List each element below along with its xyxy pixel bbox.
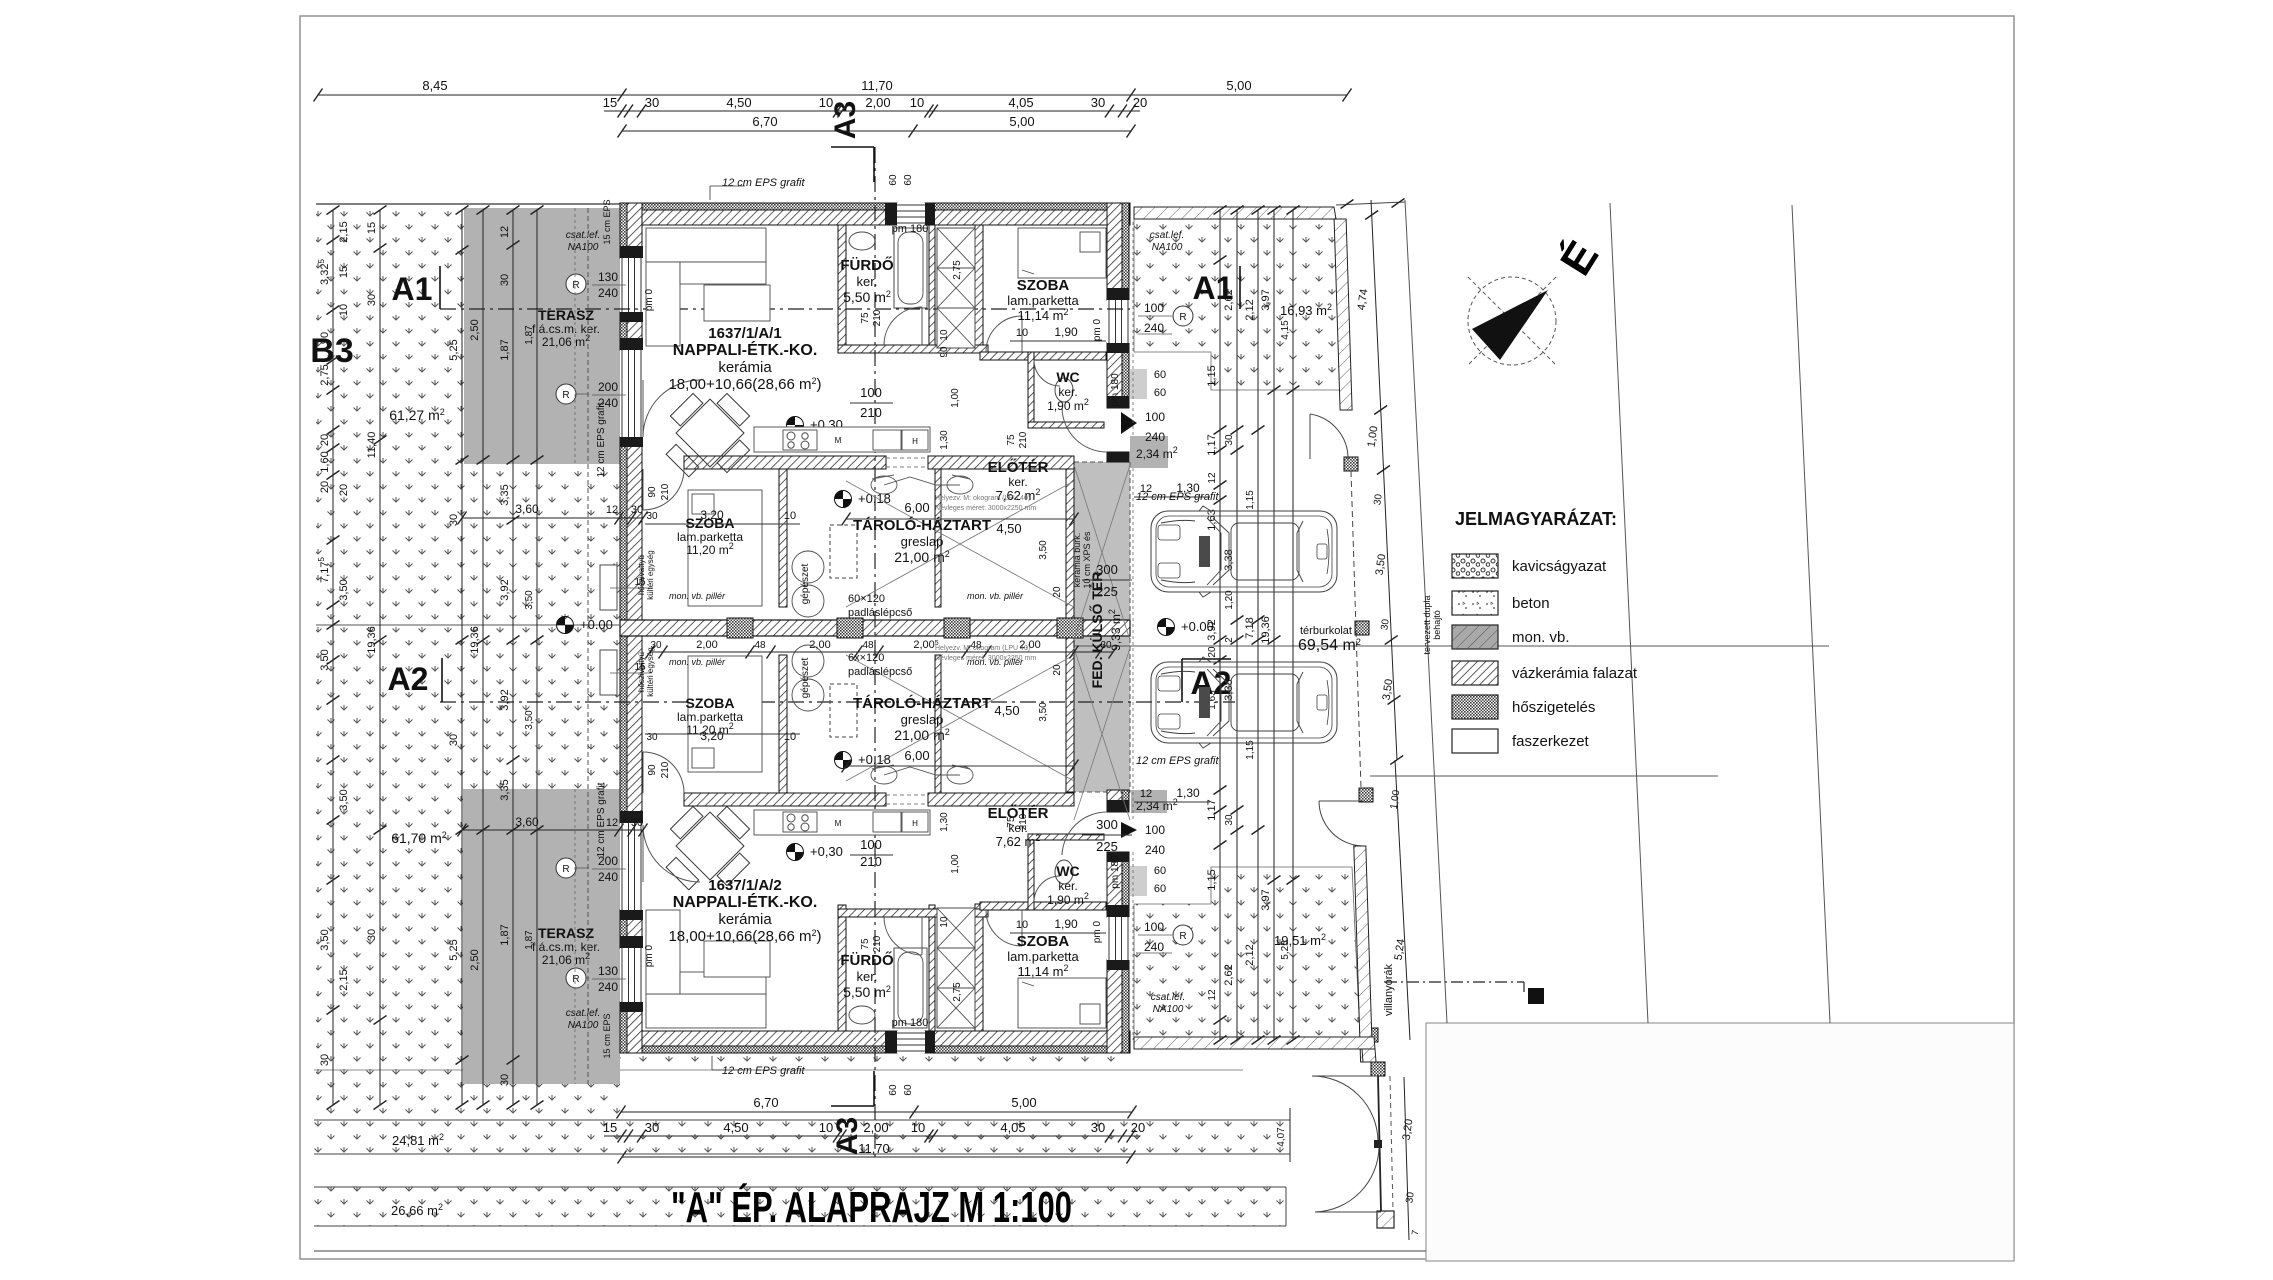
- svg-text:10: 10: [1016, 327, 1028, 339]
- svg-text:mon. vb.: mon. vb.: [1512, 629, 1570, 646]
- svg-text:pm 180: pm 180: [1110, 373, 1121, 407]
- svg-text:1,90: 1,90: [1054, 325, 1078, 339]
- svg-text:7,18: 7,18: [1244, 617, 1256, 638]
- svg-text:ker.: ker.: [1058, 385, 1077, 399]
- svg-text:FÜRDŐ: FÜRDŐ: [840, 951, 894, 969]
- svg-text:3,92: 3,92: [499, 579, 511, 600]
- svg-text:240: 240: [598, 980, 618, 994]
- svg-text:ker.: ker.: [857, 969, 878, 984]
- svg-text:3,60: 3,60: [515, 502, 539, 516]
- svg-text:20: 20: [319, 481, 331, 493]
- svg-text:Névleges méret: 3000x2250 mm: Névleges méret: 3000x2250 mm: [935, 505, 1036, 512]
- svg-text:4,05: 4,05: [1008, 95, 1033, 110]
- svg-text:30: 30: [448, 734, 460, 746]
- svg-text:200: 200: [598, 380, 618, 394]
- svg-text:225: 225: [1096, 584, 1118, 599]
- svg-text:20: 20: [338, 484, 350, 496]
- svg-text:20: 20: [1131, 1120, 1145, 1135]
- svg-text:pm 0: pm 0: [644, 288, 655, 311]
- svg-text:60: 60: [1154, 865, 1166, 877]
- svg-text:2,75: 2,75: [952, 982, 963, 1002]
- svg-text:240: 240: [1145, 843, 1165, 857]
- svg-text:60×120: 60×120: [848, 593, 885, 605]
- svg-text:padláslépcső: padláslépcső: [848, 607, 912, 619]
- svg-text:pm 180: pm 180: [892, 1017, 929, 1029]
- svg-text:10: 10: [819, 1120, 833, 1135]
- svg-text:kültéri egység: kültéri egység: [646, 647, 655, 696]
- svg-text:WC: WC: [1056, 369, 1079, 385]
- svg-text:210: 210: [1018, 431, 1029, 448]
- svg-text:19,36: 19,36: [366, 626, 378, 654]
- svg-text:30: 30: [366, 294, 378, 306]
- svg-text:11,70: 11,70: [861, 78, 893, 93]
- svg-text:NAPPALI-ÉTK.-KO.: NAPPALI-ÉTK.-KO.: [673, 892, 818, 911]
- svg-text:1,17: 1,17: [1206, 799, 1218, 820]
- svg-text:30: 30: [499, 1074, 511, 1086]
- svg-text:24,81 m2: 24,81 m2: [392, 1132, 444, 1148]
- svg-text:2,00: 2,00: [809, 639, 830, 651]
- svg-text:beton: beton: [1512, 595, 1550, 612]
- svg-text:60: 60: [888, 1084, 899, 1096]
- svg-text:10: 10: [784, 731, 796, 743]
- svg-text:210: 210: [660, 483, 671, 500]
- svg-text:pm 180: pm 180: [892, 223, 929, 235]
- svg-text:pm 0: pm 0: [644, 944, 655, 967]
- svg-text:1,20: 1,20: [1224, 590, 1235, 610]
- svg-text:20: 20: [319, 434, 331, 446]
- svg-text:ker.: ker.: [857, 274, 878, 289]
- svg-text:2,15: 2,15: [338, 221, 350, 242]
- svg-text:R: R: [572, 974, 579, 985]
- svg-text:+0,18: +0,18: [858, 491, 891, 506]
- svg-text:21,00 m2: 21,00 m2: [894, 549, 950, 565]
- svg-text:210: 210: [860, 854, 882, 869]
- svg-text:+0,30: +0,30: [810, 844, 843, 859]
- svg-text:15: 15: [338, 266, 350, 278]
- svg-text:csat.lef.: csat.lef.: [1151, 992, 1185, 1003]
- svg-text:3,50: 3,50: [524, 710, 535, 730]
- svg-text:H: H: [912, 437, 918, 446]
- svg-text:5,50 m2: 5,50 m2: [843, 984, 891, 1000]
- svg-text:60: 60: [888, 174, 899, 186]
- svg-text:240: 240: [1144, 321, 1164, 335]
- svg-text:60: 60: [903, 174, 914, 186]
- svg-text:1,15: 1,15: [1206, 365, 1218, 386]
- svg-text:3,50: 3,50: [319, 929, 331, 950]
- svg-text:2,75: 2,75: [319, 364, 331, 385]
- svg-text:69,54 m2: 69,54 m2: [1298, 637, 1361, 654]
- svg-text:240: 240: [598, 286, 618, 300]
- svg-text:30: 30: [1091, 95, 1105, 110]
- svg-text:26,66 m2: 26,66 m2: [391, 1202, 443, 1218]
- svg-text:1,87: 1,87: [499, 339, 511, 360]
- svg-text:ker.: ker.: [1058, 879, 1077, 893]
- svg-text:210: 210: [860, 405, 882, 420]
- svg-text:1,30: 1,30: [1176, 786, 1200, 800]
- svg-text:3,50: 3,50: [319, 649, 331, 670]
- svg-text:10: 10: [939, 916, 950, 928]
- svg-text:FÜRDŐ: FÜRDŐ: [840, 256, 894, 274]
- svg-text:100: 100: [860, 385, 882, 400]
- svg-text:61,70 m2: 61,70 m2: [391, 830, 447, 846]
- svg-text:6,00: 6,00: [904, 500, 929, 515]
- svg-text:5,25: 5,25: [448, 939, 460, 960]
- svg-text:padláslépcső: padláslépcső: [848, 666, 912, 678]
- svg-text:pm 0: pm 0: [1092, 318, 1103, 341]
- svg-text:20: 20: [1052, 664, 1063, 676]
- svg-text:kerámia: kerámia: [718, 359, 772, 376]
- svg-text:4,05: 4,05: [1000, 1120, 1025, 1135]
- svg-text:10: 10: [911, 1120, 925, 1135]
- svg-text:3,50: 3,50: [1038, 702, 1049, 722]
- svg-text:15: 15: [603, 1120, 617, 1135]
- svg-text:Helyezv. M: okogram (LPU 40): Helyezv. M: okogram (LPU 40): [935, 495, 1030, 502]
- svg-text:10 cm XPS és: 10 cm XPS és: [1082, 531, 1092, 589]
- svg-text:1637/1/A/2: 1637/1/A/2: [708, 877, 781, 894]
- svg-text:csat.lef.: csat.lef.: [566, 230, 600, 241]
- svg-text:3,97: 3,97: [1260, 889, 1272, 910]
- svg-text:30: 30: [1224, 434, 1235, 446]
- svg-text:SZOBA: SZOBA: [1017, 277, 1070, 294]
- svg-text:12: 12: [1207, 472, 1218, 484]
- svg-text:100: 100: [1144, 301, 1164, 315]
- svg-text:NAPPALI-ÉTK.-KO.: NAPPALI-ÉTK.-KO.: [673, 340, 818, 359]
- svg-text:3,50: 3,50: [338, 789, 350, 810]
- svg-text:NA100: NA100: [1152, 242, 1183, 253]
- svg-text:H: H: [912, 819, 918, 828]
- svg-text:30: 30: [1379, 618, 1392, 631]
- svg-text:210: 210: [1018, 813, 1029, 830]
- svg-text:90: 90: [647, 486, 658, 498]
- svg-text:"A" ÉP. ALAPRAJZ M 1:100: "A" ÉP. ALAPRAJZ M 1:100: [671, 1182, 1072, 1232]
- svg-text:1,90 m2: 1,90 m2: [1047, 397, 1089, 413]
- svg-text:90: 90: [939, 346, 950, 358]
- svg-text:90: 90: [647, 764, 658, 776]
- svg-text:30: 30: [1091, 1120, 1105, 1135]
- svg-text:12 cm EPS grafit: 12 cm EPS grafit: [596, 782, 607, 857]
- svg-text:1637/1/A/1: 1637/1/A/1: [708, 325, 781, 342]
- svg-text:21,00 m2: 21,00 m2: [894, 727, 950, 743]
- svg-text:NA100: NA100: [568, 242, 599, 253]
- svg-text:kültéri egység: kültéri egység: [646, 550, 655, 599]
- svg-text:3,92: 3,92: [499, 689, 511, 710]
- svg-text:mon. vb. pillér: mon. vb. pillér: [967, 591, 1024, 601]
- svg-text:4,50: 4,50: [996, 521, 1021, 536]
- svg-text:5,50 m2: 5,50 m2: [843, 289, 891, 305]
- svg-text:TERASZ: TERASZ: [538, 925, 594, 941]
- svg-text:3,92: 3,92: [1206, 619, 1218, 640]
- svg-text:21,06 m2: 21,06 m2: [542, 333, 590, 349]
- svg-text:3,97: 3,97: [1260, 289, 1272, 310]
- svg-text:4,50: 4,50: [723, 1120, 748, 1135]
- svg-text:1,30: 1,30: [939, 812, 950, 832]
- svg-text:3,20: 3,20: [700, 729, 724, 743]
- svg-text:TERASZ: TERASZ: [538, 307, 594, 323]
- svg-text:12: 12: [1207, 989, 1218, 1001]
- svg-text:A1: A1: [392, 271, 433, 307]
- svg-text:1,90: 1,90: [1054, 917, 1078, 931]
- svg-text:75: 75: [860, 312, 871, 324]
- svg-text:18,00+10,66(28,66 m2): 18,00+10,66(28,66 m2): [668, 928, 821, 945]
- svg-text:3,60: 3,60: [515, 815, 539, 829]
- svg-text:12: 12: [499, 226, 511, 238]
- svg-text:12 cm EPS grafit: 12 cm EPS grafit: [722, 177, 805, 189]
- svg-text:30: 30: [645, 95, 659, 110]
- svg-text:130: 130: [598, 964, 618, 978]
- svg-text:6,00: 6,00: [904, 748, 929, 763]
- svg-text:30: 30: [319, 1054, 331, 1066]
- svg-text:1,15: 1,15: [1206, 869, 1218, 890]
- svg-text:30: 30: [1100, 640, 1112, 651]
- svg-text:3,35: 3,35: [499, 484, 511, 505]
- svg-text:19,36: 19,36: [469, 626, 481, 654]
- svg-text:20: 20: [1133, 95, 1147, 110]
- svg-text:15: 15: [603, 95, 617, 110]
- svg-text:10: 10: [784, 510, 796, 522]
- svg-text:R: R: [1179, 931, 1186, 942]
- svg-text:60: 60: [1154, 387, 1166, 399]
- svg-text:ker.: ker.: [1008, 475, 1027, 489]
- svg-text:1,30: 1,30: [939, 430, 950, 450]
- svg-text:10: 10: [910, 95, 924, 110]
- svg-text:18,00+10,66(28,66 m2): 18,00+10,66(28,66 m2): [668, 376, 821, 393]
- svg-text:1,00: 1,00: [950, 854, 961, 874]
- svg-text:pm 180: pm 180: [1110, 855, 1121, 889]
- svg-text:10: 10: [338, 304, 350, 316]
- svg-text:4,50: 4,50: [726, 95, 751, 110]
- svg-text:75: 75: [1006, 434, 1017, 446]
- svg-text:19,36: 19,36: [1260, 616, 1272, 644]
- svg-text:15: 15: [366, 222, 378, 234]
- svg-text:6x×120: 6x×120: [848, 652, 884, 664]
- svg-text:hőszivattyú: hőszivattyú: [637, 555, 646, 595]
- svg-text:kavicságyazat: kavicságyazat: [1512, 558, 1607, 575]
- svg-text:30: 30: [646, 511, 658, 522]
- svg-text:térburkolat: térburkolat: [1300, 625, 1352, 637]
- svg-text:NA100: NA100: [1153, 1004, 1184, 1015]
- svg-text:300: 300: [1096, 817, 1118, 832]
- svg-text:4,50: 4,50: [994, 703, 1019, 718]
- svg-text:19,51 m2: 19,51 m2: [1274, 932, 1326, 948]
- svg-text:1,17: 1,17: [1206, 434, 1218, 455]
- svg-text:SZOBA: SZOBA: [686, 695, 735, 711]
- svg-text:12: 12: [1140, 788, 1152, 800]
- svg-text:240: 240: [1145, 430, 1165, 444]
- svg-text:30: 30: [366, 929, 378, 941]
- svg-text:2,62: 2,62: [1223, 964, 1235, 985]
- svg-text:R: R: [572, 280, 579, 291]
- svg-text:10: 10: [819, 95, 833, 110]
- svg-text:12 cm EPS grafit: 12 cm EPS grafit: [596, 402, 607, 477]
- svg-text:6,70: 6,70: [752, 114, 777, 129]
- svg-text:hőszigetelés: hőszigetelés: [1512, 699, 1595, 716]
- svg-text:225: 225: [1096, 839, 1118, 854]
- svg-text:WC: WC: [1056, 863, 1079, 879]
- svg-text:30: 30: [631, 817, 643, 829]
- svg-text:R: R: [562, 864, 569, 875]
- svg-text:61,27 m2: 61,27 m2: [389, 407, 445, 423]
- svg-text:lam.parketta: lam.parketta: [1007, 949, 1079, 964]
- svg-text:12: 12: [606, 504, 618, 516]
- svg-text:60: 60: [1154, 883, 1166, 895]
- svg-text:villanyórák: villanyórák: [1383, 964, 1395, 1016]
- svg-text:pm 0: pm 0: [1092, 920, 1103, 943]
- svg-text:mon. vb. pillér: mon. vb. pillér: [967, 657, 1024, 667]
- svg-text:NA100: NA100: [568, 1020, 599, 1031]
- svg-text:240: 240: [1144, 940, 1164, 954]
- svg-text:kerámia burk.: kerámia burk.: [1072, 533, 1082, 588]
- svg-text:30: 30: [1224, 814, 1235, 826]
- svg-text:csat.lef.: csat.lef.: [1150, 230, 1184, 241]
- svg-text:11,14 m2: 11,14 m2: [1017, 963, 1068, 979]
- svg-text:2,12: 2,12: [1244, 944, 1256, 965]
- svg-text:hőszivattyú: hőszivattyú: [637, 652, 646, 692]
- svg-text:6,70: 6,70: [753, 1095, 778, 1110]
- svg-text:mon. vb. pillér: mon. vb. pillér: [669, 657, 726, 667]
- svg-text:11,20 m2: 11,20 m2: [686, 541, 733, 557]
- svg-text:11,14 m2: 11,14 m2: [1017, 307, 1068, 323]
- svg-text:210: 210: [660, 761, 671, 778]
- svg-text:B3: B3: [310, 332, 353, 370]
- svg-text:1,00: 1,00: [950, 388, 961, 408]
- svg-text:48: 48: [862, 640, 874, 651]
- svg-text:5,25: 5,25: [448, 339, 460, 360]
- svg-text:2,50: 2,50: [469, 319, 481, 340]
- svg-text:240: 240: [598, 870, 618, 884]
- svg-text:15 cm EPS: 15 cm EPS: [602, 199, 612, 244]
- svg-text:2,00: 2,00: [865, 95, 890, 110]
- svg-text:2,75: 2,75: [952, 260, 963, 280]
- svg-text:1,90 m2: 1,90 m2: [1047, 891, 1089, 907]
- svg-text:210: 210: [872, 309, 883, 326]
- svg-text:11,40: 11,40: [366, 432, 378, 459]
- svg-text:60: 60: [903, 1084, 914, 1096]
- svg-text:gépészet: gépészet: [800, 657, 811, 698]
- svg-text:10: 10: [1016, 919, 1028, 931]
- svg-text:12 cm EPS grafit: 12 cm EPS grafit: [722, 1065, 805, 1077]
- svg-text:5,00: 5,00: [1009, 114, 1034, 129]
- svg-text:R: R: [562, 390, 569, 401]
- svg-text:20: 20: [1207, 646, 1218, 658]
- svg-text:kerámia: kerámia: [718, 911, 772, 928]
- svg-text:30: 30: [1372, 493, 1385, 506]
- svg-text:75: 75: [1006, 816, 1017, 828]
- svg-text:4,07: 4,07: [1276, 1127, 1287, 1147]
- svg-text:130: 130: [598, 270, 618, 284]
- svg-text:30: 30: [631, 504, 643, 516]
- svg-text:1,60: 1,60: [319, 451, 331, 472]
- svg-text:ELŐTÉR: ELŐTÉR: [988, 458, 1049, 476]
- svg-text:2,12: 2,12: [1244, 299, 1256, 320]
- svg-text:20: 20: [1052, 586, 1063, 598]
- svg-text:12 cm EPS grafit: 12 cm EPS grafit: [1136, 491, 1219, 503]
- svg-text:+0.00: +0.00: [580, 617, 613, 632]
- svg-text:greslap: greslap: [901, 534, 944, 549]
- svg-text:75: 75: [860, 938, 871, 950]
- svg-text:vázkerámia falazat: vázkerámia falazat: [1512, 665, 1638, 682]
- svg-text:M: M: [835, 819, 842, 828]
- svg-text:3,20: 3,20: [700, 508, 724, 522]
- svg-text:2,00: 2,00: [696, 639, 717, 651]
- svg-text:3,50: 3,50: [1038, 540, 1049, 560]
- svg-text:21,06 m2: 21,06 m2: [542, 951, 590, 967]
- svg-text:100: 100: [1145, 823, 1165, 837]
- svg-text:3,50: 3,50: [524, 590, 535, 610]
- svg-text:2,62: 2,62: [1223, 289, 1235, 310]
- svg-text:Helyezv. M: okogram (LPU 40): Helyezv. M: okogram (LPU 40): [935, 645, 1030, 652]
- svg-text:10: 10: [939, 329, 950, 341]
- svg-text:1,87: 1,87: [499, 924, 511, 945]
- svg-text:greslap: greslap: [901, 712, 944, 727]
- svg-text:2,00: 2,00: [863, 1120, 888, 1135]
- svg-text:2,50: 2,50: [469, 949, 481, 970]
- svg-text:100: 100: [1144, 920, 1164, 934]
- svg-text:11,70: 11,70: [858, 1141, 890, 1156]
- svg-text:16,93 m2: 16,93 m2: [1280, 302, 1332, 318]
- svg-text:12: 12: [606, 817, 618, 829]
- svg-text:100: 100: [1145, 410, 1165, 424]
- svg-text:4,15: 4,15: [1280, 320, 1291, 340]
- svg-text:csat.lef.: csat.lef.: [566, 1008, 600, 1019]
- svg-text:30: 30: [645, 1120, 659, 1135]
- svg-text:2,15: 2,15: [338, 969, 350, 990]
- svg-text:48: 48: [754, 640, 766, 651]
- svg-text:2,34 m2: 2,34 m2: [1136, 445, 1178, 461]
- svg-text:3,35: 3,35: [499, 779, 511, 800]
- svg-text:15 cm EPS: 15 cm EPS: [602, 1013, 612, 1058]
- svg-text:7,62 m2: 7,62 m2: [996, 833, 1041, 849]
- svg-text:100: 100: [860, 837, 882, 852]
- svg-text:2: 2: [1224, 637, 1235, 643]
- svg-text:A2: A2: [388, 661, 429, 697]
- svg-text:5,00: 5,00: [1226, 78, 1251, 93]
- svg-text:+0,18: +0,18: [858, 752, 891, 767]
- svg-text:R: R: [1179, 312, 1186, 323]
- svg-text:3,50: 3,50: [338, 579, 350, 600]
- svg-text:M: M: [835, 436, 842, 445]
- svg-text:mon. vb. pillér: mon. vb. pillér: [669, 591, 726, 601]
- svg-text:5,00: 5,00: [1011, 1095, 1036, 1110]
- svg-text:90: 90: [319, 332, 331, 344]
- svg-text:TÁROLÓ-HÁZTART: TÁROLÓ-HÁZTART: [853, 694, 991, 712]
- svg-text:30: 30: [499, 274, 511, 286]
- svg-text:1,15: 1,15: [1245, 490, 1256, 510]
- svg-text:12 cm EPS grafit: 12 cm EPS grafit: [1136, 755, 1219, 767]
- svg-text:tervezett dupla: tervezett dupla: [1422, 595, 1432, 654]
- svg-text:gépészet: gépészet: [800, 563, 811, 604]
- svg-text:300: 300: [1096, 562, 1118, 577]
- svg-text:60: 60: [1154, 369, 1166, 381]
- svg-text:30: 30: [1404, 1191, 1417, 1204]
- svg-text:8,45: 8,45: [422, 78, 447, 93]
- svg-text:lam.parketta: lam.parketta: [1007, 293, 1079, 308]
- svg-text:SZOBA: SZOBA: [1017, 933, 1070, 950]
- svg-text:210: 210: [872, 935, 883, 952]
- svg-text:behajtó: behajtó: [1432, 610, 1442, 640]
- svg-text:JELMAGYARÁZAT:: JELMAGYARÁZAT:: [1455, 508, 1617, 529]
- svg-text:faszerkezet: faszerkezet: [1512, 733, 1590, 750]
